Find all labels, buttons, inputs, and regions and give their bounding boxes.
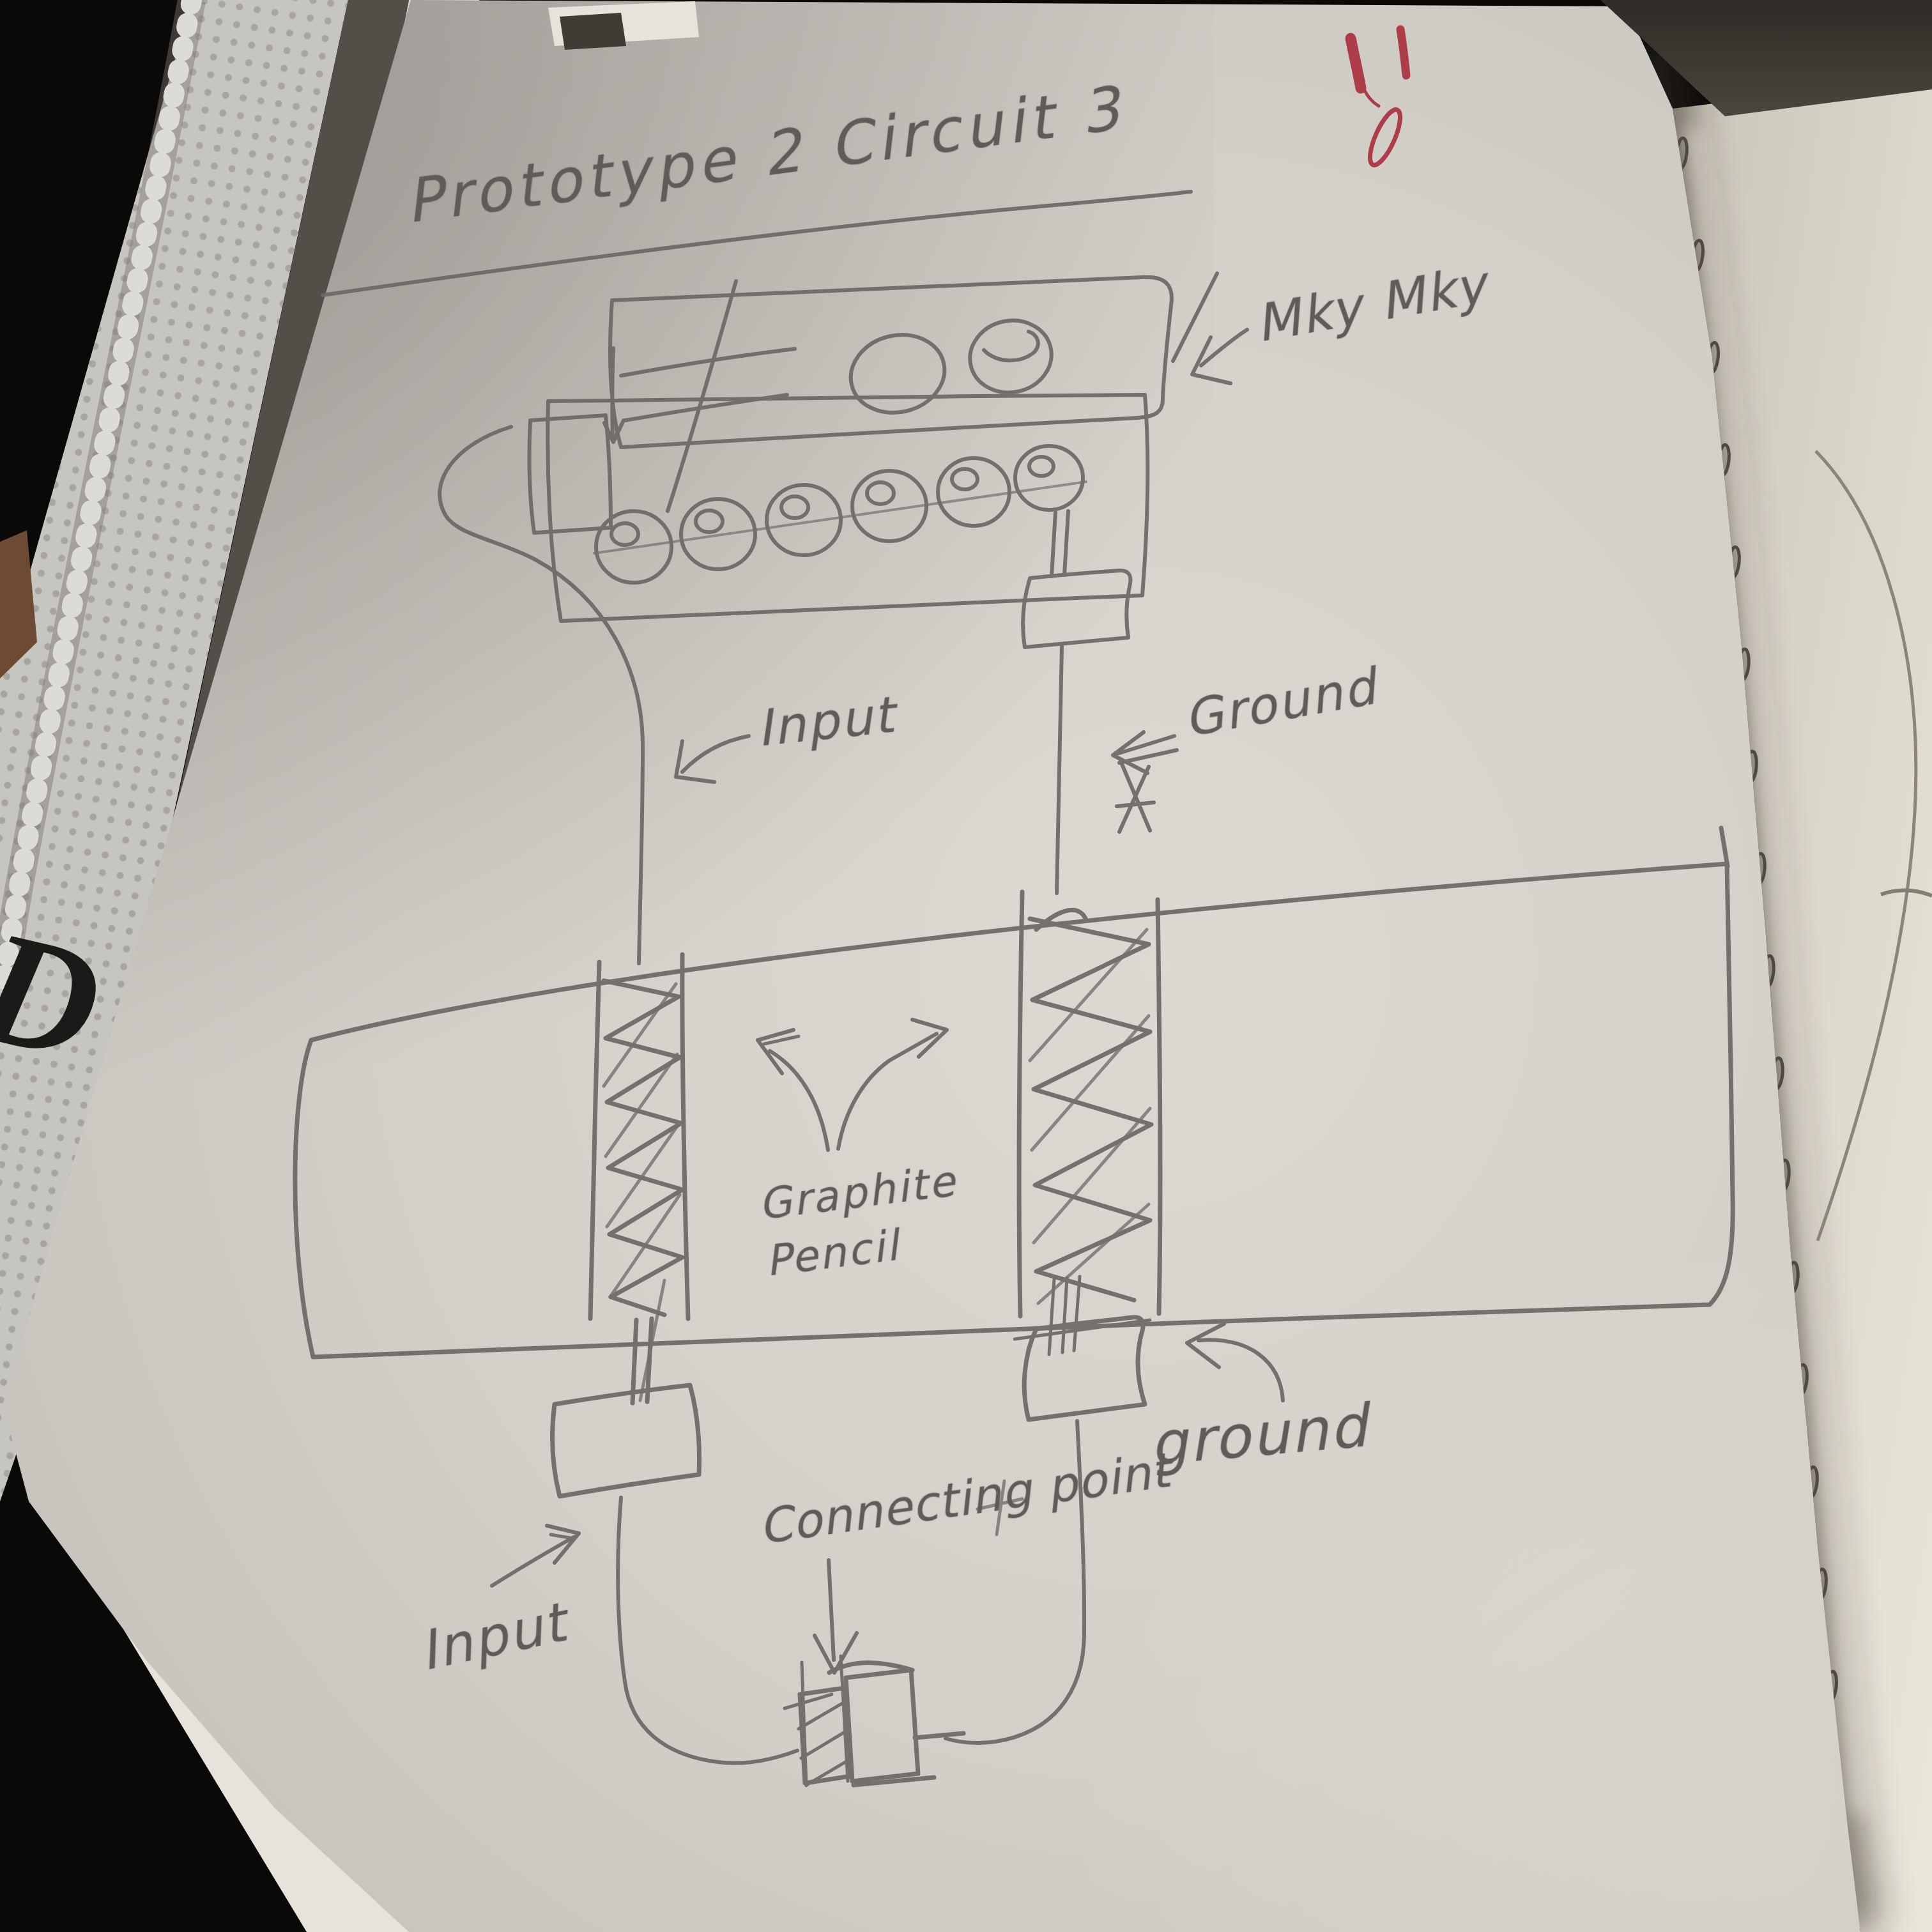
sketch-photo-svg xyxy=(0,0,1932,1932)
page-tab-notch xyxy=(560,13,626,50)
notebook-photo: Prototype 2 Circuit 3 Mky Mky Input Grou… xyxy=(0,0,1932,1932)
